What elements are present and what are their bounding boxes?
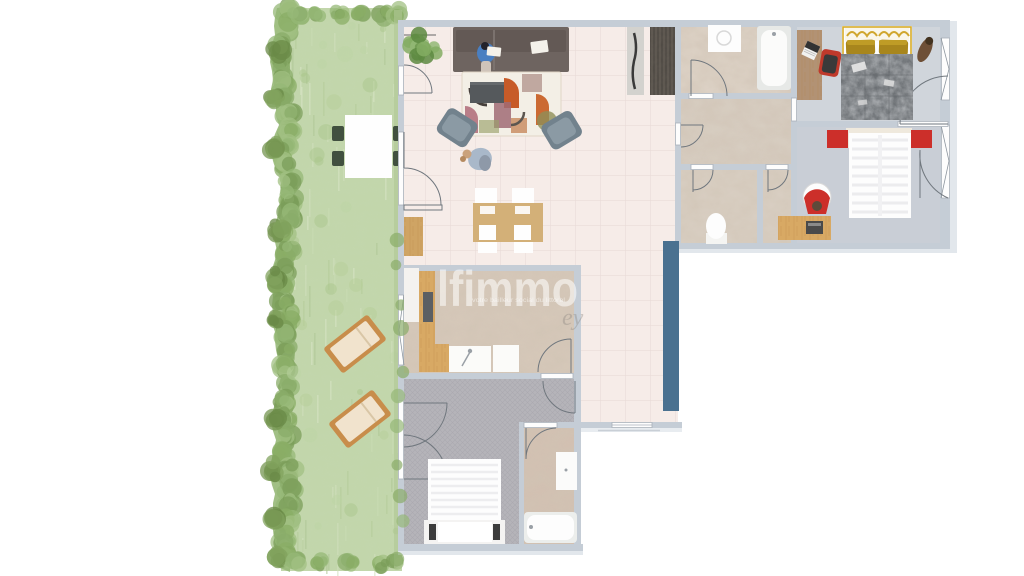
- svg-text:votre bailleur social du litto: votre bailleur social du littoral: [472, 297, 566, 304]
- svg-text:lfimmo: lfimmo: [437, 261, 578, 317]
- svg-text:ey: ey: [562, 305, 584, 331]
